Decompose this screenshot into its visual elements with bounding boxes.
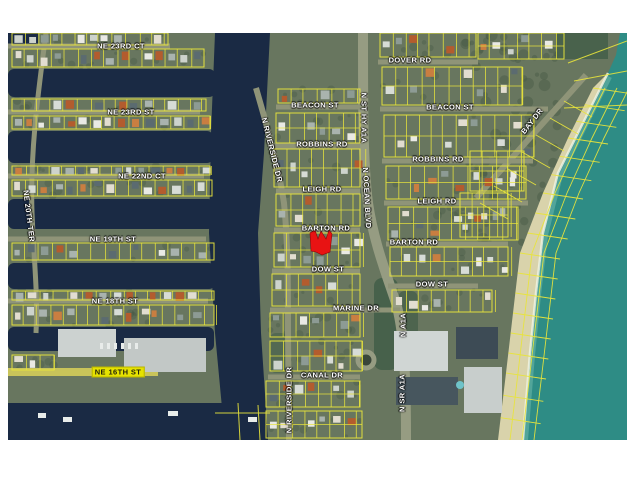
selected-parcel-marker[interactable]: [310, 230, 332, 255]
map-viewport[interactable]: NE 23RD CTNE 23RD STNE 22ND CTNE 19TH ST…: [8, 33, 627, 440]
aerial-basemap: [8, 33, 627, 440]
page: NE 23RD CTNE 23RD STNE 22ND CTNE 19TH ST…: [0, 0, 640, 480]
pool: [456, 381, 464, 389]
